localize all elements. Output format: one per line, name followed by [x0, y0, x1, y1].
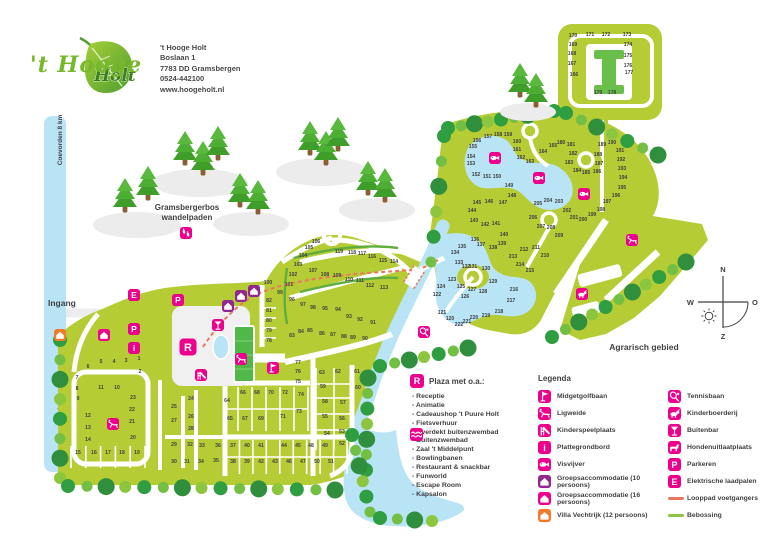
- border-tree: [234, 483, 245, 494]
- border-tree: [310, 484, 321, 495]
- plot-number: 65: [227, 416, 233, 422]
- plot-number: 104: [299, 253, 308, 259]
- border-tree: [53, 412, 67, 426]
- plot-number: 31: [184, 459, 190, 465]
- legend-item: Midgetgolfbaan: [538, 390, 666, 403]
- legend-item: iPlattegrondbord: [538, 441, 666, 454]
- border-tree: [373, 359, 387, 373]
- legend-item-label: Villa Vechtrijk (12 persoons): [557, 512, 648, 519]
- plot-number: 84: [298, 329, 304, 335]
- plot-number: 49: [322, 443, 328, 449]
- plot-number: 42: [258, 459, 264, 465]
- plot-number: 67: [242, 416, 248, 422]
- border-tree: [55, 433, 66, 444]
- plot-number: 148: [508, 193, 517, 199]
- plaza-facility-item: Zaal 't Middelpunt: [412, 446, 535, 453]
- plot-number: 22: [129, 407, 135, 413]
- plot-number: 129: [489, 279, 498, 285]
- villa-vechtrijk-icon: [54, 329, 66, 341]
- plaza-facility-item: Receptie: [412, 393, 535, 400]
- plaza-facility-item: Buitenzwembad: [412, 437, 535, 444]
- border-tree: [570, 314, 587, 331]
- legend-title: Legenda: [538, 374, 571, 383]
- plot-number: 134: [451, 250, 460, 256]
- plot-number: 80: [266, 318, 272, 324]
- plot-number: 160: [513, 139, 522, 145]
- plot-number: 97: [300, 302, 306, 308]
- plot-number: 61: [354, 369, 360, 375]
- plot-number: 114: [390, 259, 398, 265]
- plaza-facility-item: Funworld: [412, 473, 535, 480]
- pine-tree-icon: [206, 126, 230, 161]
- plot-number: 212: [520, 247, 529, 253]
- plot-number: 156: [473, 138, 482, 144]
- plot-number: 77: [295, 360, 301, 366]
- plot-number: 41: [258, 443, 264, 449]
- plot-number: 187: [595, 161, 604, 167]
- house-legend-icon: [538, 509, 551, 522]
- legend-item: Kinderspeelplaats: [538, 424, 666, 437]
- border-tree: [119, 481, 131, 493]
- border-tree: [214, 481, 228, 495]
- fishing-pond-icon: [533, 172, 545, 184]
- forest-label-1: Gramsbergerbos: [155, 203, 220, 212]
- border-tree: [620, 134, 634, 148]
- plot-number: 71: [280, 414, 286, 420]
- border-tree: [360, 370, 377, 387]
- legend-item: Ligweide: [538, 407, 666, 420]
- plot-number: 150: [493, 174, 502, 180]
- outdoor-bar-icon: [212, 319, 224, 331]
- plot-number: 207: [537, 224, 546, 230]
- plot-number: 4: [113, 359, 116, 365]
- legend-item-label: Visvijver: [557, 461, 585, 468]
- plot-number: 222: [455, 322, 464, 328]
- plot-number: 209: [555, 233, 564, 239]
- plot-number: 96: [289, 297, 295, 303]
- border-tree: [586, 309, 598, 321]
- compass-o: O: [752, 298, 758, 307]
- plot-number: 87: [330, 332, 336, 338]
- plot-number: 1: [138, 356, 141, 362]
- border-tree: [576, 115, 587, 126]
- agrarisch-label: Agrarisch gebied: [609, 342, 678, 352]
- walking-trails-icon: [180, 227, 192, 239]
- plaza-facilities-block: R Plaza met o.a.: ReceptieAnimatieCadeau…: [410, 374, 535, 500]
- plot-number: 126: [461, 294, 470, 300]
- legend-item: Hondenuitlaatplaats: [668, 441, 766, 454]
- address-line: 't Hooge Holt: [160, 43, 240, 53]
- plot-number: 91: [370, 320, 376, 326]
- border-tree: [327, 482, 344, 499]
- plot-number: 185: [582, 170, 591, 176]
- border-tree: [624, 284, 641, 301]
- address-line: 0524-442100: [160, 74, 240, 84]
- plot-number: 5: [100, 359, 103, 365]
- plot-number: 118: [348, 250, 356, 256]
- plot-number: 79: [266, 328, 272, 334]
- plot-number: 188: [594, 152, 603, 158]
- plot-number: 15: [75, 450, 81, 456]
- plot-number: 60: [355, 385, 361, 391]
- plot-number: 186: [593, 169, 602, 175]
- plot-number: 173: [623, 32, 632, 38]
- border-tree: [640, 279, 652, 291]
- plot-number: 172: [602, 32, 611, 38]
- plot-number: 39: [244, 459, 250, 465]
- plot-number: 88: [341, 334, 347, 340]
- plot-number: 206: [529, 215, 538, 221]
- plot-number: 158: [494, 132, 503, 138]
- compass: N O Z W: [687, 265, 758, 341]
- plot-number: 40: [244, 443, 250, 449]
- plot-number: 190: [608, 140, 617, 146]
- logo-script-text: 't Hooge: [30, 52, 142, 78]
- border-tree: [52, 371, 69, 388]
- plot-number: 57: [340, 400, 346, 406]
- plot-number: 28: [188, 426, 194, 432]
- plot-number: 208: [547, 225, 556, 231]
- plot-number: 119: [335, 249, 343, 255]
- plot-number: 157: [484, 134, 493, 140]
- plot-number: 58: [322, 399, 328, 405]
- border-tree: [373, 511, 387, 525]
- border-tree: [406, 512, 423, 529]
- plot-number: 33: [199, 443, 205, 449]
- plot-number: 85: [307, 328, 313, 334]
- charging-station-icon: E: [128, 289, 140, 301]
- plot-number: 38: [230, 459, 236, 465]
- plot-number: 56: [339, 416, 345, 422]
- legend-item-label: Elektrische laadpalen: [687, 478, 757, 485]
- legend-item-label: Hondenuitlaatplaats: [687, 444, 752, 451]
- address-line: Boslaan 1: [160, 53, 240, 63]
- group-accommodation-10-icon: [248, 285, 260, 297]
- compass-n: N: [720, 265, 725, 274]
- border-tree: [360, 402, 374, 416]
- info-board-icon: i: [128, 342, 140, 354]
- plot-number: 47: [300, 459, 306, 465]
- plot-number: 9: [77, 396, 80, 402]
- plot-number: 137: [477, 242, 486, 248]
- border-tree: [652, 270, 666, 284]
- plot-number: 142: [481, 222, 490, 228]
- plot-number: 178: [608, 90, 617, 96]
- plaza-facility-item: Overdekt buitenzwembad: [412, 429, 535, 436]
- border-tree: [460, 340, 477, 357]
- outdoor-pool: [213, 335, 229, 359]
- fishing-pond-icon: [489, 152, 501, 164]
- plaza-facility-item: Fietsverhuur: [412, 420, 535, 427]
- legend-item: Bebossing: [668, 509, 766, 522]
- plot-number: 34: [198, 459, 204, 465]
- plaza-facility-item: Cadeaushop 't Puure Holt: [412, 411, 535, 418]
- plot-number: 89: [350, 335, 356, 341]
- plot-number: 116: [368, 254, 376, 260]
- border-tree: [426, 257, 437, 268]
- border-tree: [448, 346, 459, 357]
- plot-number: 11: [98, 385, 104, 391]
- border-tree: [436, 156, 447, 167]
- plot-number: 21: [129, 419, 135, 425]
- legend-item-label: Buitenbar: [687, 427, 719, 434]
- plot-number: 43: [272, 459, 278, 465]
- svg-text:P: P: [175, 295, 181, 305]
- border-tree: [290, 482, 304, 496]
- plot-number: 62: [335, 369, 341, 375]
- plot-number: 115: [379, 258, 387, 264]
- plot-number: 44: [281, 443, 287, 449]
- plaza-title: Plaza met o.a.:: [429, 377, 485, 386]
- border-tree: [137, 480, 151, 494]
- plot-number: 194: [619, 175, 628, 181]
- plot-number: 170: [569, 33, 578, 39]
- plot-number: 20: [130, 435, 136, 441]
- plot-number: 30: [171, 459, 177, 465]
- group-accommodation-16-icon: [98, 329, 110, 341]
- legend-line-swatch: [668, 514, 684, 518]
- plot-number: 201: [570, 215, 579, 221]
- plot-number: 13: [85, 425, 91, 431]
- border-tree: [482, 116, 494, 128]
- plot-number: 26: [188, 414, 194, 420]
- svg-text:P: P: [131, 324, 137, 334]
- parking-icon: P: [128, 323, 140, 335]
- legend-item-label: Kinderspeelplaats: [557, 427, 616, 434]
- plot-number: 35: [213, 458, 219, 464]
- plot-number: 106: [312, 239, 321, 245]
- border-tree: [250, 480, 267, 497]
- plot-number: 110: [345, 277, 353, 283]
- pine-tree-icon: [246, 180, 270, 215]
- border-tree: [430, 178, 447, 195]
- plot-number: 151: [483, 174, 492, 180]
- plot-number: 200: [579, 217, 588, 223]
- plot-number: 37: [230, 443, 236, 449]
- plot-number: 16: [91, 450, 97, 456]
- plot-number: 199: [588, 212, 597, 218]
- plot-number: 95: [322, 306, 328, 312]
- plot-number: 103: [294, 262, 303, 268]
- border-tree: [432, 347, 446, 361]
- tennis-legend-icon: [668, 390, 681, 403]
- border-tree: [158, 482, 169, 493]
- plot-number: 221: [463, 319, 472, 325]
- svg-text:i: i: [133, 343, 135, 353]
- plot-number: 174: [624, 42, 633, 48]
- plot-number: 166: [570, 72, 579, 78]
- plot-number: 82: [266, 298, 272, 304]
- plot-number: 99: [277, 290, 283, 296]
- border-tree: [614, 294, 625, 305]
- plot-number: 94: [335, 307, 341, 313]
- legend-item-label: Parkeren: [687, 461, 716, 468]
- border-tree: [426, 515, 438, 527]
- plot-number: 154: [467, 154, 476, 160]
- plot-number: 113: [380, 285, 388, 291]
- plot-number: 195: [618, 185, 627, 191]
- plot-number: 193: [618, 166, 627, 172]
- plot-number: 176: [624, 63, 633, 69]
- legend-item: Villa Vechtrijk (12 persoons): [538, 509, 666, 522]
- tennis-court-icon: [418, 326, 430, 338]
- plot-number: 145: [473, 200, 482, 206]
- pine-tree-icon: [173, 131, 197, 166]
- plot-number: 180: [557, 140, 566, 146]
- plot-number: 155: [469, 144, 478, 150]
- plot-number: 130: [482, 266, 491, 272]
- legend-column-2: TennisbaanKinderboerderijBuitenbarHonden…: [668, 390, 766, 526]
- plot-number: 98: [310, 305, 316, 311]
- plot-number: 46: [286, 459, 292, 465]
- plot-number: 192: [617, 157, 626, 163]
- border-tree: [437, 129, 451, 143]
- plot-number: 63: [319, 370, 325, 376]
- plaza-facilities-list: ReceptieAnimatieCadeaushop 't Puure Holt…: [412, 393, 535, 498]
- plot-number: 50: [314, 459, 320, 465]
- plot-number: 19: [134, 450, 140, 456]
- legend-item-label: Ligweide: [557, 410, 586, 417]
- plot-number: 177: [625, 70, 634, 76]
- plot-number: 217: [507, 298, 516, 304]
- legend-item-label: Kinderboerderij: [687, 410, 738, 417]
- plot-number: 32: [187, 442, 193, 448]
- plot-number: 168: [568, 51, 577, 57]
- sunbathing-lawn-icon: [107, 418, 119, 430]
- slide-legend-icon: [538, 424, 551, 437]
- border-tree: [466, 115, 483, 132]
- plot-number: 64: [224, 398, 230, 404]
- minigolf-icon: [267, 362, 279, 374]
- legend-item-label: Groepsaccommodatie (16 persoons): [557, 492, 666, 506]
- P-legend-icon: P: [668, 458, 681, 471]
- plot-number: 102: [289, 272, 298, 278]
- border-tree: [82, 481, 93, 492]
- legend-item: Groepsaccommodatie (16 persoons): [538, 492, 666, 505]
- border-tree: [362, 388, 373, 399]
- border-tree: [678, 254, 695, 271]
- plot-number: 23: [130, 395, 136, 401]
- border-tree: [389, 358, 400, 369]
- plot-number: 184: [573, 168, 582, 174]
- house-legend-icon: [538, 475, 551, 488]
- E-legend-icon: E: [668, 475, 681, 488]
- plot-number: 144: [468, 208, 477, 214]
- border-tree: [272, 483, 284, 495]
- border-tree: [392, 514, 403, 525]
- plot-number: 69: [258, 416, 264, 422]
- sun-icon: [705, 312, 713, 320]
- plot-number: 48: [308, 443, 314, 449]
- plot-number: 216: [510, 287, 519, 293]
- road-label-coevorden: Coevorden 8 km: [57, 114, 64, 165]
- plot-number: 210: [541, 253, 550, 259]
- border-tree: [357, 475, 369, 487]
- plot-number: 182: [569, 151, 578, 157]
- plot-number: 86: [319, 331, 325, 337]
- dog-legend-icon: [668, 441, 681, 454]
- plot-number: 78: [266, 338, 272, 344]
- legend-item: Looppad voetgangers: [668, 492, 766, 505]
- plot-number: 107: [309, 268, 318, 274]
- plot-number: 213: [509, 254, 518, 260]
- plot-number: 204: [544, 198, 553, 204]
- plot-number: 214: [516, 262, 525, 268]
- address-line: 7783 DD Gramsbergen: [160, 64, 240, 74]
- address-block: 't Hooge Holt Boslaan 1 7783 DD Gramsber…: [160, 43, 240, 95]
- plot-number: 24: [188, 396, 194, 402]
- plot-number: 121: [438, 310, 447, 316]
- plot-number: 14: [85, 437, 91, 443]
- plot-number: 202: [563, 208, 572, 214]
- legend-item-label: Looppad voetgangers: [687, 495, 758, 502]
- plot-number: 101: [285, 282, 294, 288]
- plot-number: 139: [498, 241, 507, 247]
- plot-number: 7: [76, 375, 79, 381]
- border-tree: [55, 354, 66, 365]
- border-tree: [54, 393, 66, 405]
- plot-number: 164: [539, 149, 548, 155]
- plot-number: 122: [433, 292, 442, 298]
- legend-item: Groepsaccommodatie (10 persoons): [538, 475, 666, 488]
- plot-number: 197: [603, 199, 612, 205]
- house-legend-icon: [538, 492, 551, 505]
- plot-number: 146: [485, 199, 494, 205]
- plot-number: 3: [125, 358, 128, 364]
- plot-number: 8: [76, 386, 79, 392]
- plot-number: 74: [298, 392, 304, 398]
- border-tree: [358, 431, 375, 448]
- plot-number: 18: [119, 450, 125, 456]
- plot-number: 100: [264, 280, 273, 286]
- plot-number: 29: [171, 442, 177, 448]
- plot-number: 140: [500, 232, 509, 238]
- fish-legend-icon: [538, 458, 551, 471]
- plot-number: 10: [114, 385, 120, 391]
- border-tree: [98, 478, 115, 495]
- legend-item: Tennisbaan: [668, 390, 766, 403]
- plot-number: 181: [567, 142, 576, 148]
- legend-item-label: Midgetgolfbaan: [557, 393, 607, 400]
- plot-number: 2: [139, 369, 142, 375]
- golf-legend-icon: [538, 390, 551, 403]
- plaza-facility-item: Kapsalon: [412, 491, 535, 498]
- plot-number: 127: [468, 287, 477, 293]
- forest-label-2: wandelpaden: [161, 213, 213, 222]
- plot-number: 53: [339, 429, 345, 435]
- plot-number: 218: [495, 309, 504, 315]
- plot-number: 120: [446, 316, 455, 322]
- plot-number: 196: [612, 193, 621, 199]
- compass-z: Z: [721, 332, 726, 341]
- sunbathing-lawn-icon: [235, 353, 247, 365]
- border-tree: [560, 324, 571, 335]
- plot-number: 81: [266, 308, 272, 314]
- border-tree: [174, 479, 191, 496]
- fishing-pond-icon: [578, 188, 590, 200]
- plot-number: 92: [357, 317, 363, 323]
- plot-number: 167: [568, 61, 577, 67]
- plaza-facility-item: Animatie: [412, 402, 535, 409]
- plot-number: 124: [437, 284, 446, 290]
- plot-number: 117: [358, 251, 366, 257]
- plot-number: 211: [532, 245, 540, 251]
- plaza-facility-item: Escape Room: [412, 482, 535, 489]
- border-tree: [61, 479, 75, 493]
- border-tree: [588, 119, 605, 136]
- pine-tree-icon: [113, 178, 137, 213]
- plot-number: 159: [504, 132, 513, 138]
